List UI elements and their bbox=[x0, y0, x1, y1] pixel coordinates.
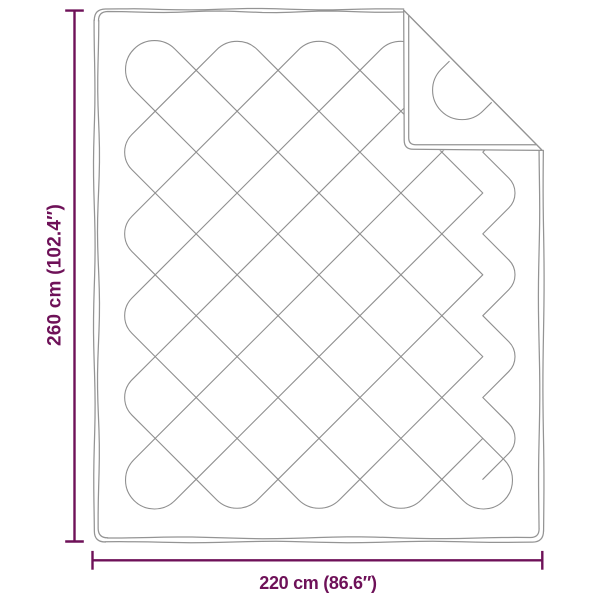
svg-text:260 cm (102.4″): 260 cm (102.4″) bbox=[45, 204, 66, 346]
svg-text:220 cm (86.6″): 220 cm (86.6″) bbox=[259, 573, 377, 593]
